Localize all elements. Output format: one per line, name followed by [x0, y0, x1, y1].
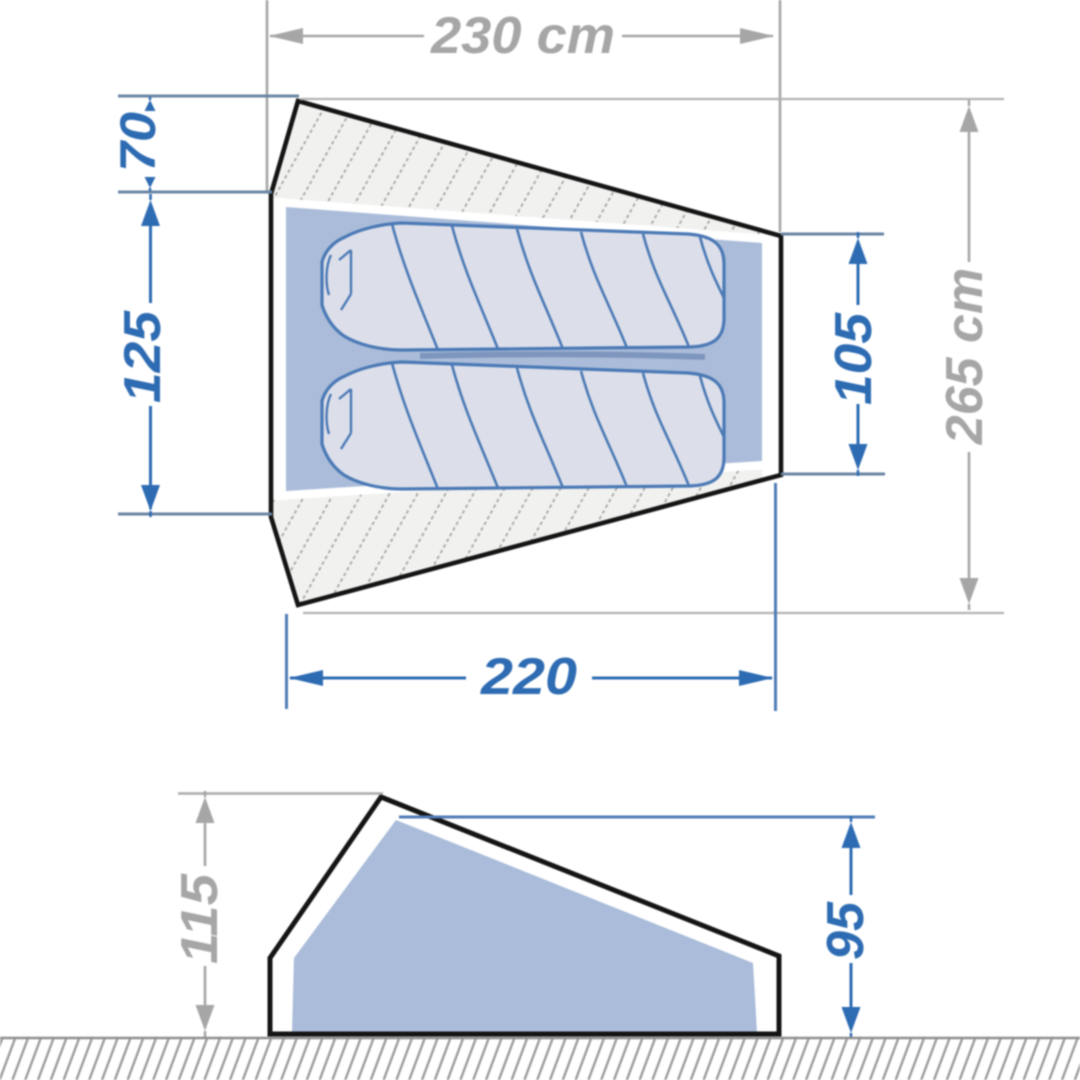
svg-text:70: 70	[110, 112, 166, 172]
svg-text:115: 115	[171, 873, 229, 964]
svg-text:265 cm: 265 cm	[936, 268, 994, 445]
svg-text:125: 125	[114, 310, 172, 403]
svg-text:230 cm: 230 cm	[430, 7, 615, 65]
svg-text:220: 220	[480, 648, 577, 706]
svg-text:105: 105	[825, 312, 883, 405]
svg-text:95: 95	[817, 901, 875, 960]
